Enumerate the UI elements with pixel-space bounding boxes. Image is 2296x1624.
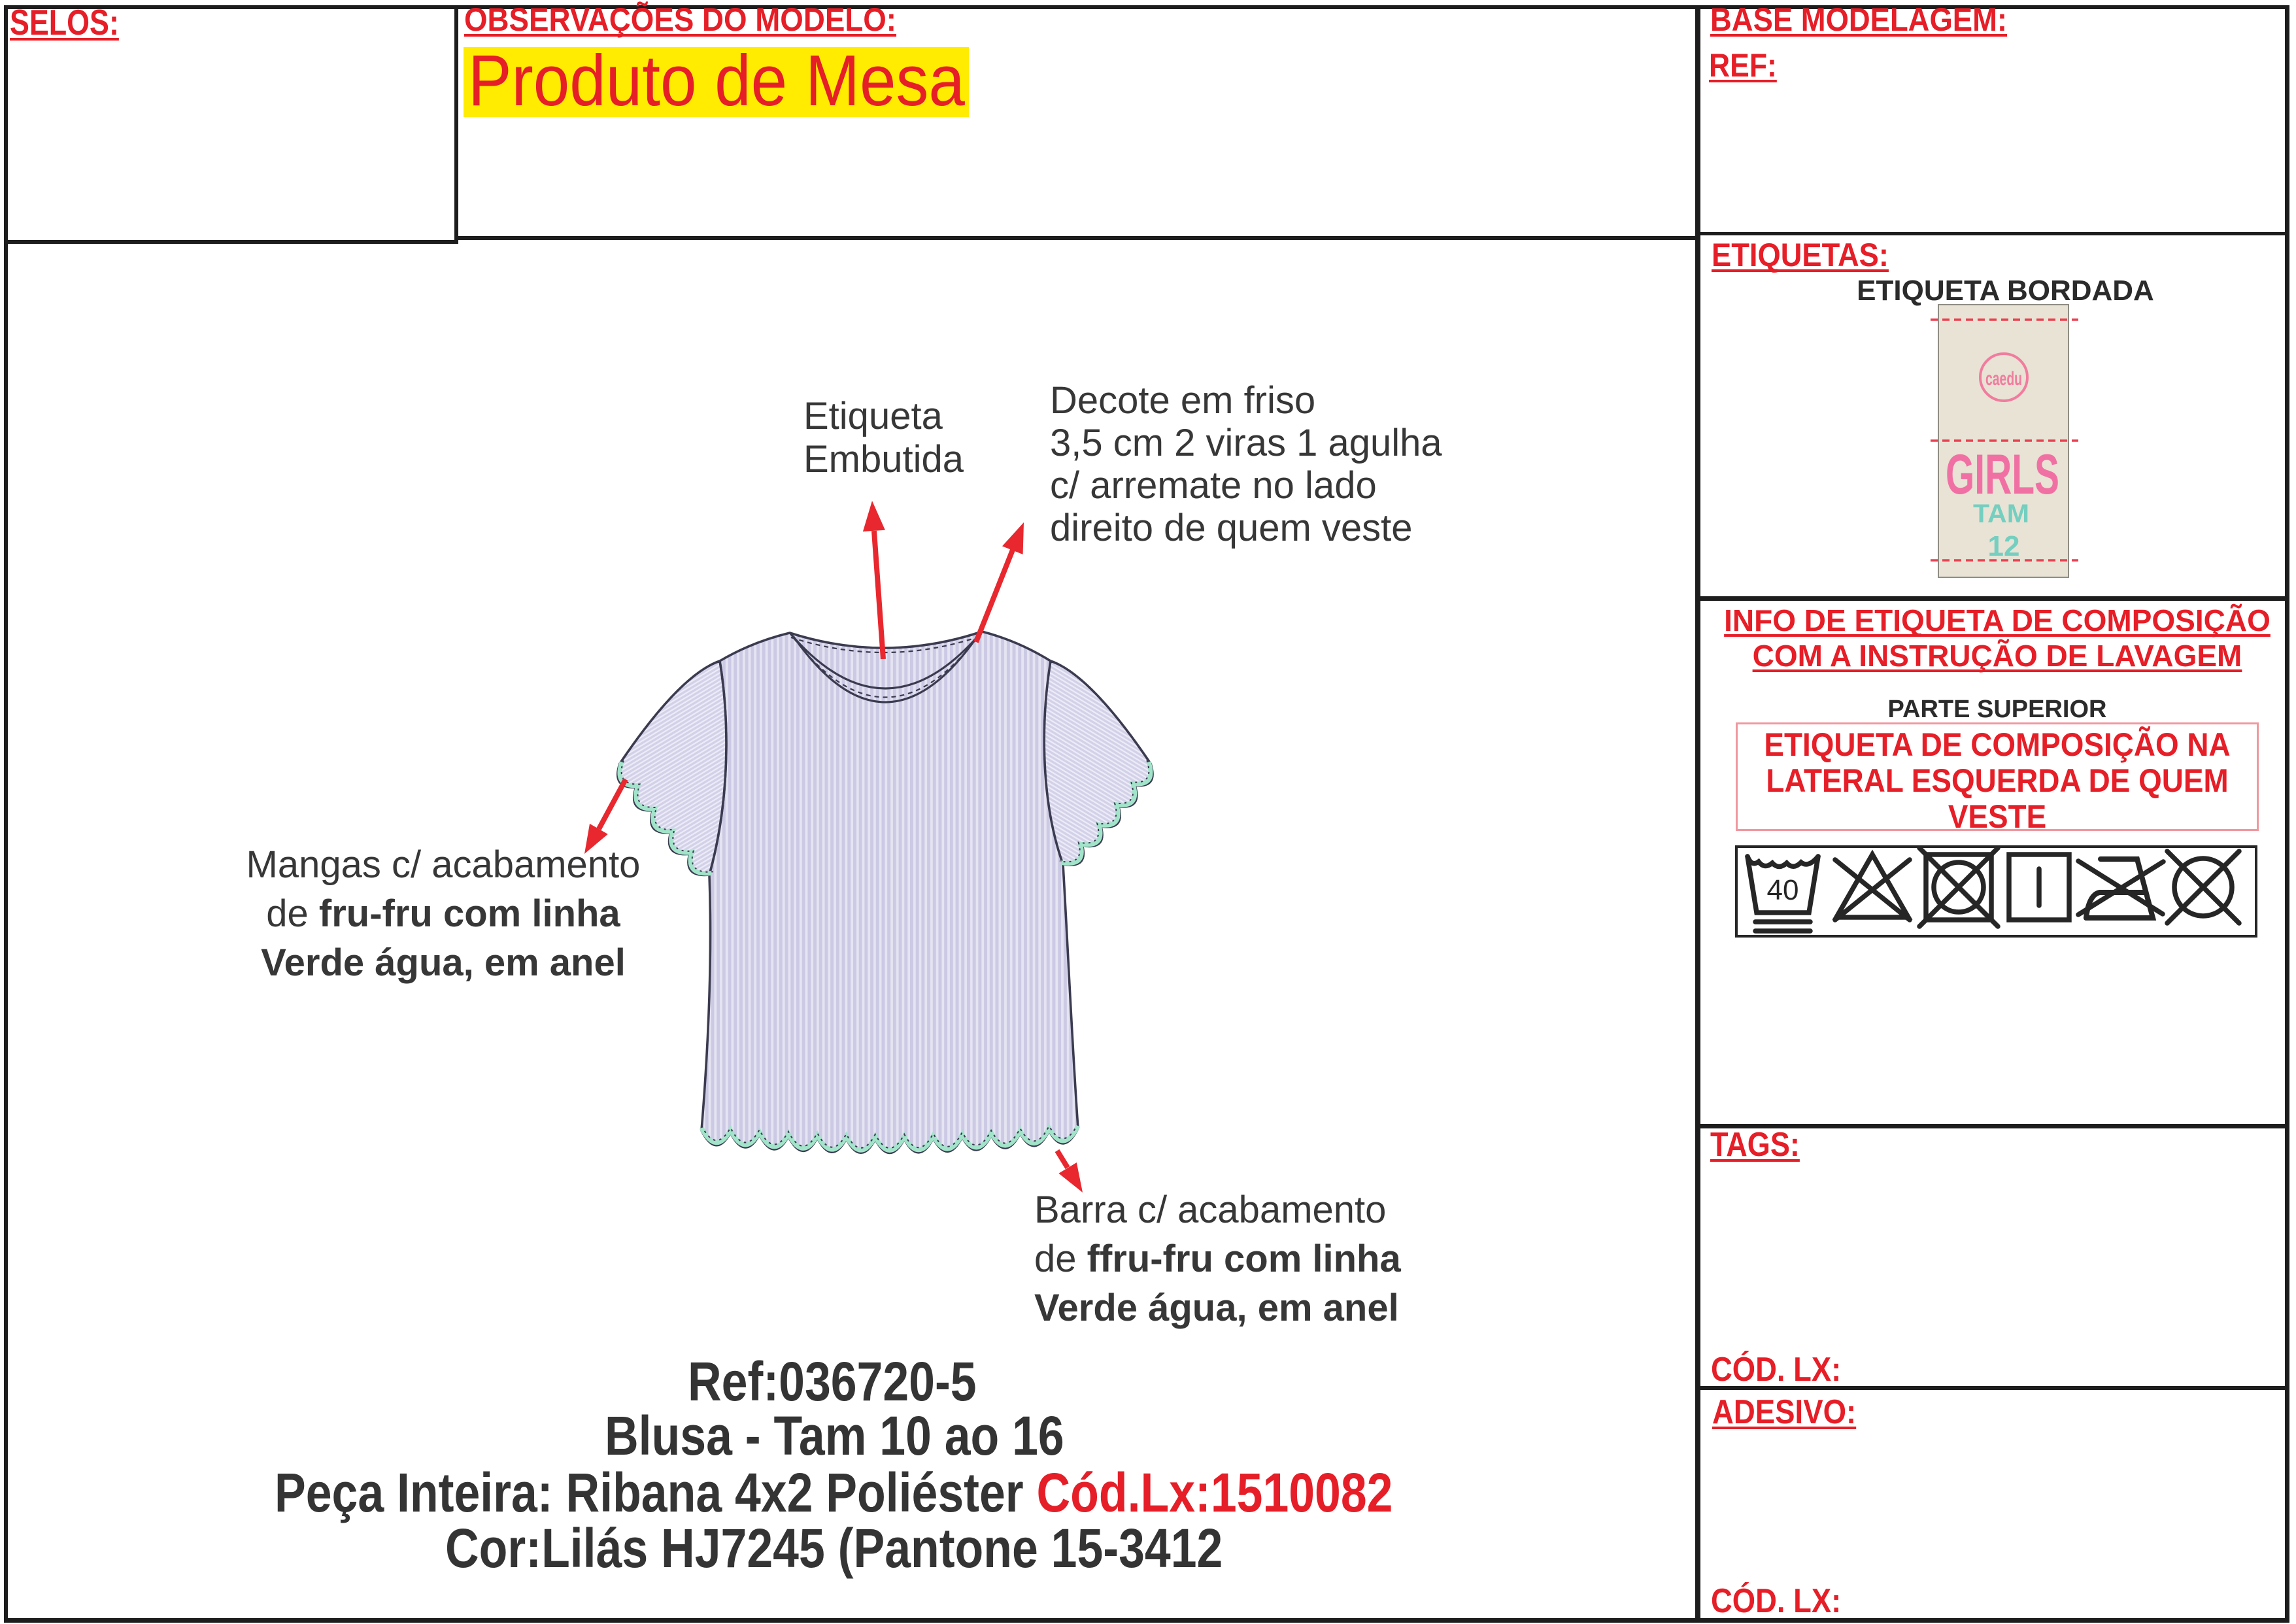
svg-text:40: 40 xyxy=(1767,874,1799,906)
svg-text:TAM: TAM xyxy=(1973,499,2029,528)
svg-text:caedu: caedu xyxy=(1985,368,2022,390)
svg-text:12: 12 xyxy=(1988,530,2020,562)
svg-text:GIRLS: GIRLS xyxy=(1946,443,2059,506)
